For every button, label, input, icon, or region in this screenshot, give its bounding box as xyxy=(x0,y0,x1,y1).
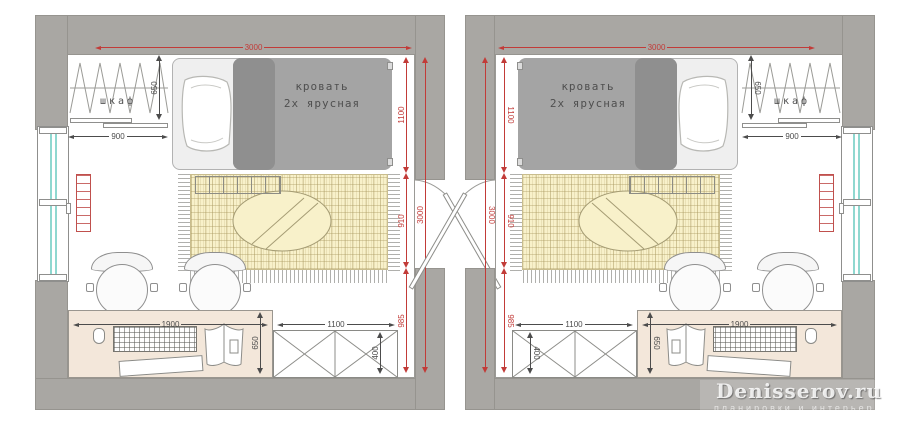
dim-label: 900 xyxy=(783,133,800,141)
bed-label-line1: кровать xyxy=(518,78,658,95)
watermark-title: Denisserov.ru xyxy=(700,380,898,402)
dim-wardrobe-width: 900 xyxy=(742,131,842,142)
dim-label: 1900 xyxy=(729,321,751,329)
dim-label: 1100 xyxy=(398,106,406,123)
dim-label: 650 xyxy=(151,81,159,94)
floor-plan-canvas: 3000 1100 910 985 3000 650 900 xyxy=(0,0,900,446)
dim-label: 1900 xyxy=(160,321,182,329)
bed-label-line2: 2х ярусная xyxy=(252,95,392,112)
dim-room-width: 3000 xyxy=(498,42,815,53)
dim-label: 910 xyxy=(506,214,514,227)
bed-label: кровать 2х ярусная xyxy=(518,78,658,112)
dim-label: 650 xyxy=(753,81,761,94)
dim-room-depth: 3000 xyxy=(480,57,491,373)
dim-label: 1100 xyxy=(506,106,514,123)
dim-cabinet-depth: 400 xyxy=(525,332,536,374)
dim-zone-bed: 1100 xyxy=(499,57,510,173)
dim-room-width: 3000 xyxy=(95,42,412,53)
dim-zone-middle: 910 xyxy=(499,173,510,268)
room-dims-left: 3000 1100 910 985 3000 650 900 xyxy=(35,12,445,412)
bed-label-line1: кровать xyxy=(252,78,392,95)
dim-label: 900 xyxy=(109,133,126,141)
dim-label: 985 xyxy=(398,314,406,327)
dim-label: 400 xyxy=(372,346,380,359)
dim-wardrobe-depth: 650 xyxy=(154,55,165,120)
dim-zone-desk: 985 xyxy=(499,268,510,373)
room-dims-right: 3000 1100 910 985 3000 650 900 xyxy=(465,12,875,412)
watermark: Denisserov.ru планировки и интерьеры xyxy=(700,380,898,420)
dim-label: 3000 xyxy=(243,44,265,52)
dim-desk-width: 1900 xyxy=(642,319,837,330)
dim-zone-bed: 1100 xyxy=(401,57,412,173)
dim-label: 3000 xyxy=(646,44,668,52)
wardrobe-label: шкаф xyxy=(68,96,168,107)
dim-label: 400 xyxy=(532,346,540,359)
dim-label: 650 xyxy=(652,336,660,349)
dim-label: 1100 xyxy=(325,321,346,329)
bed-label: кровать 2х ярусная xyxy=(252,78,392,112)
dim-label: 3000 xyxy=(487,206,495,224)
dim-desk-width: 1900 xyxy=(73,319,268,330)
dim-label: 1100 xyxy=(563,321,584,329)
dim-label: 985 xyxy=(506,314,514,327)
dim-desk-depth: 650 xyxy=(645,312,656,374)
dim-label: 650 xyxy=(252,336,260,349)
dim-cabinet-width: 1100 xyxy=(515,319,633,330)
watermark-subtitle: планировки и интерьеры xyxy=(700,402,898,414)
dim-desk-depth: 650 xyxy=(255,312,266,374)
dim-cabinet-width: 1100 xyxy=(277,319,395,330)
dim-wardrobe-depth: 650 xyxy=(746,55,757,120)
bed-label-line2: 2х ярусная xyxy=(518,95,658,112)
dim-cabinet-depth: 400 xyxy=(375,332,386,374)
wardrobe-label: шкаф xyxy=(742,96,842,107)
dim-wardrobe-width: 900 xyxy=(68,131,168,142)
